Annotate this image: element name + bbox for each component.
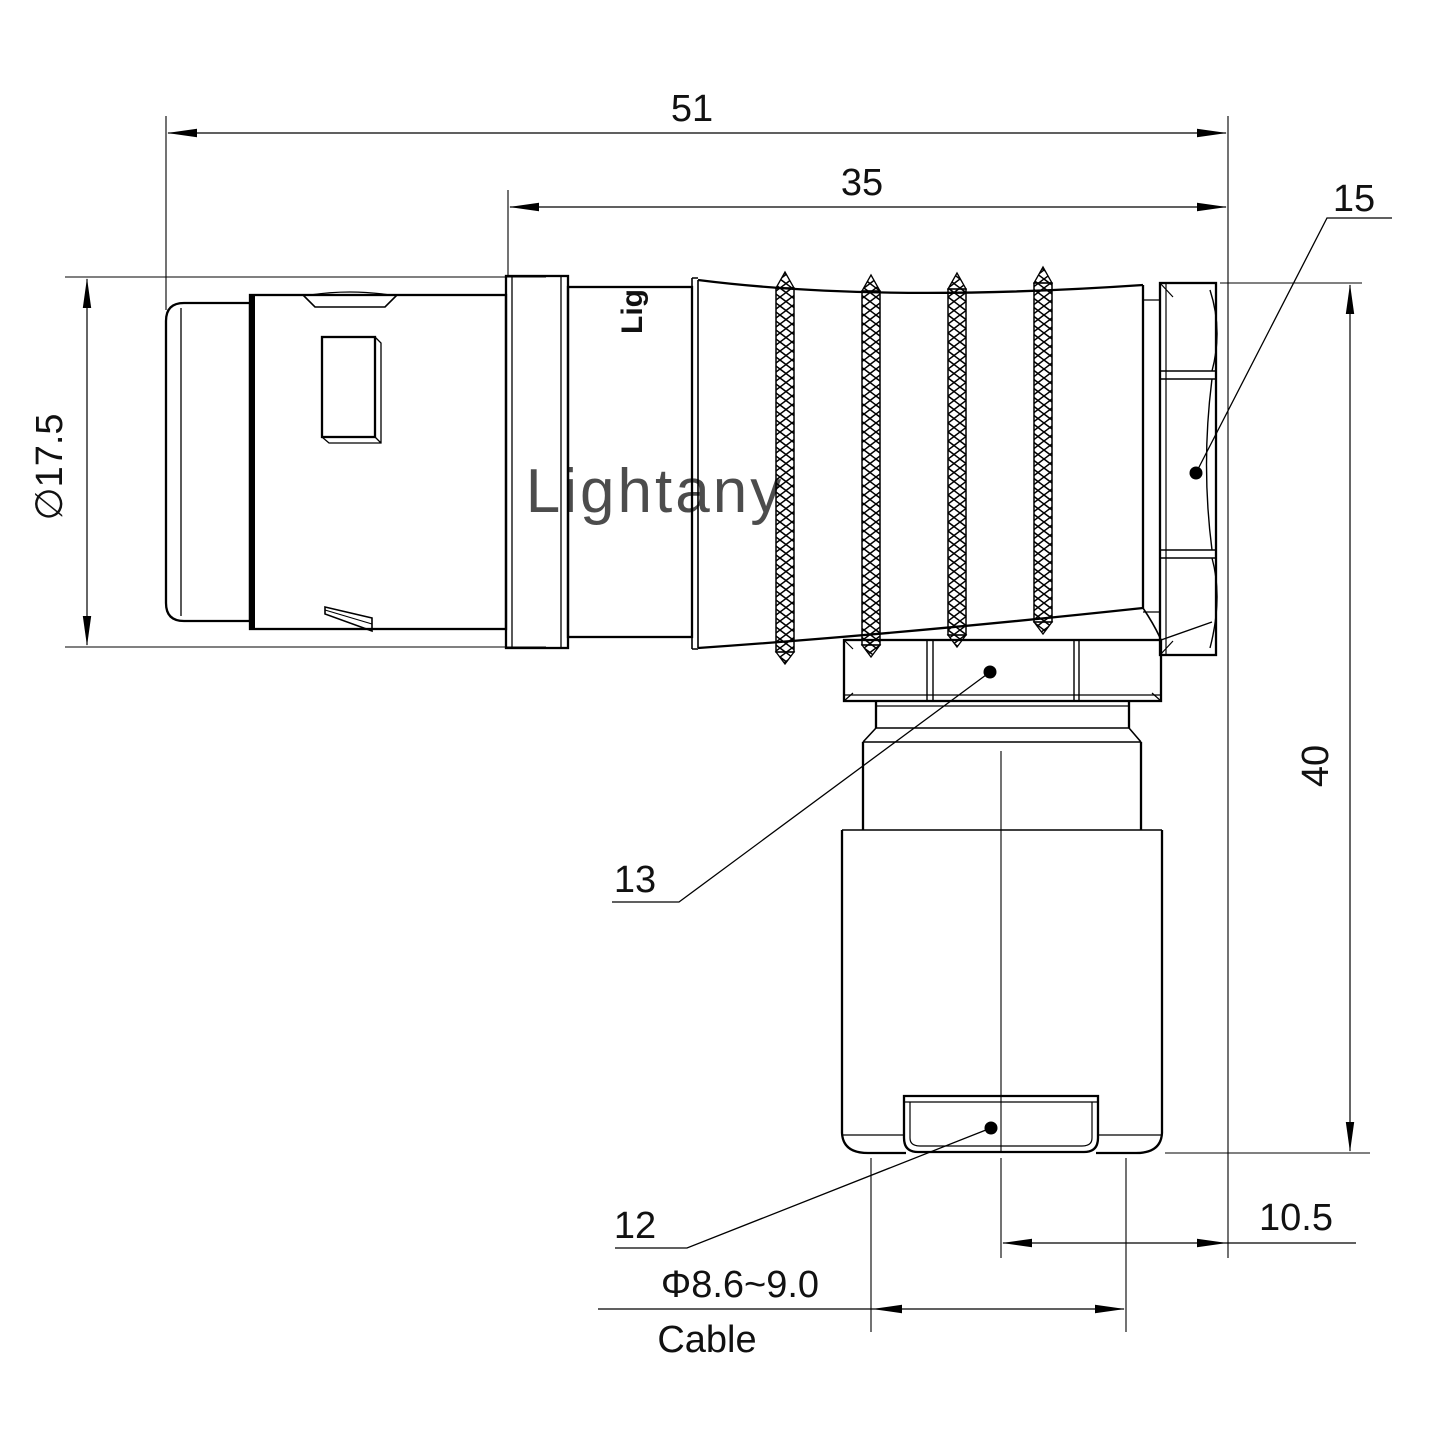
dimension-40-label: 40 [1295, 745, 1337, 787]
dimension-40: 40 [1295, 285, 1350, 1151]
callout-13-dot [984, 666, 997, 679]
dimension-35: 35 [510, 162, 1226, 207]
cable-caption-label: Cable [657, 1319, 756, 1361]
knurl-band [862, 275, 880, 657]
dimension-51-label: 51 [671, 88, 713, 130]
bayonet-window [322, 337, 381, 443]
callout-15-label: 15 [1333, 178, 1375, 220]
cable-barrel [842, 701, 1162, 1153]
dimension-diameter-label: ∅17.5 [29, 413, 71, 520]
knurl-band [1034, 267, 1052, 634]
coupling-hex-nut [844, 622, 1212, 701]
connector-technical-drawing: Lightany Lig [0, 0, 1440, 1440]
knurl-bands [776, 267, 1052, 664]
callout-12-dot [985, 1122, 998, 1135]
cable-dimension: Φ8.6~9.0 Cable [598, 1264, 1124, 1361]
callout-12: 12 [614, 1122, 998, 1249]
front-shell [166, 292, 506, 629]
callout-15-dot [1190, 467, 1203, 480]
dimension-diameter-17-5: ∅17.5 [29, 279, 87, 645]
body-marking-text: Lig [616, 289, 649, 334]
extension-lines [65, 116, 1370, 1332]
knurl-band [948, 273, 966, 647]
dimension-10-5: 10.5 [1003, 1197, 1356, 1243]
hex-backnut [1160, 283, 1217, 655]
callout-13-label: 13 [614, 859, 656, 901]
callout-15: 15 [1190, 178, 1393, 480]
watermark: Lightany [526, 457, 784, 526]
cable-diameter-label: Φ8.6~9.0 [661, 1264, 819, 1306]
drawing-page: Lightany Lig [0, 0, 1440, 1440]
dimension-10-5-label: 10.5 [1259, 1197, 1333, 1239]
callout-12-label: 12 [614, 1205, 656, 1247]
dimension-35-label: 35 [841, 162, 883, 204]
latch-wedge [325, 607, 372, 631]
knurl-band [776, 272, 794, 664]
dimension-51: 51 [168, 88, 1226, 133]
